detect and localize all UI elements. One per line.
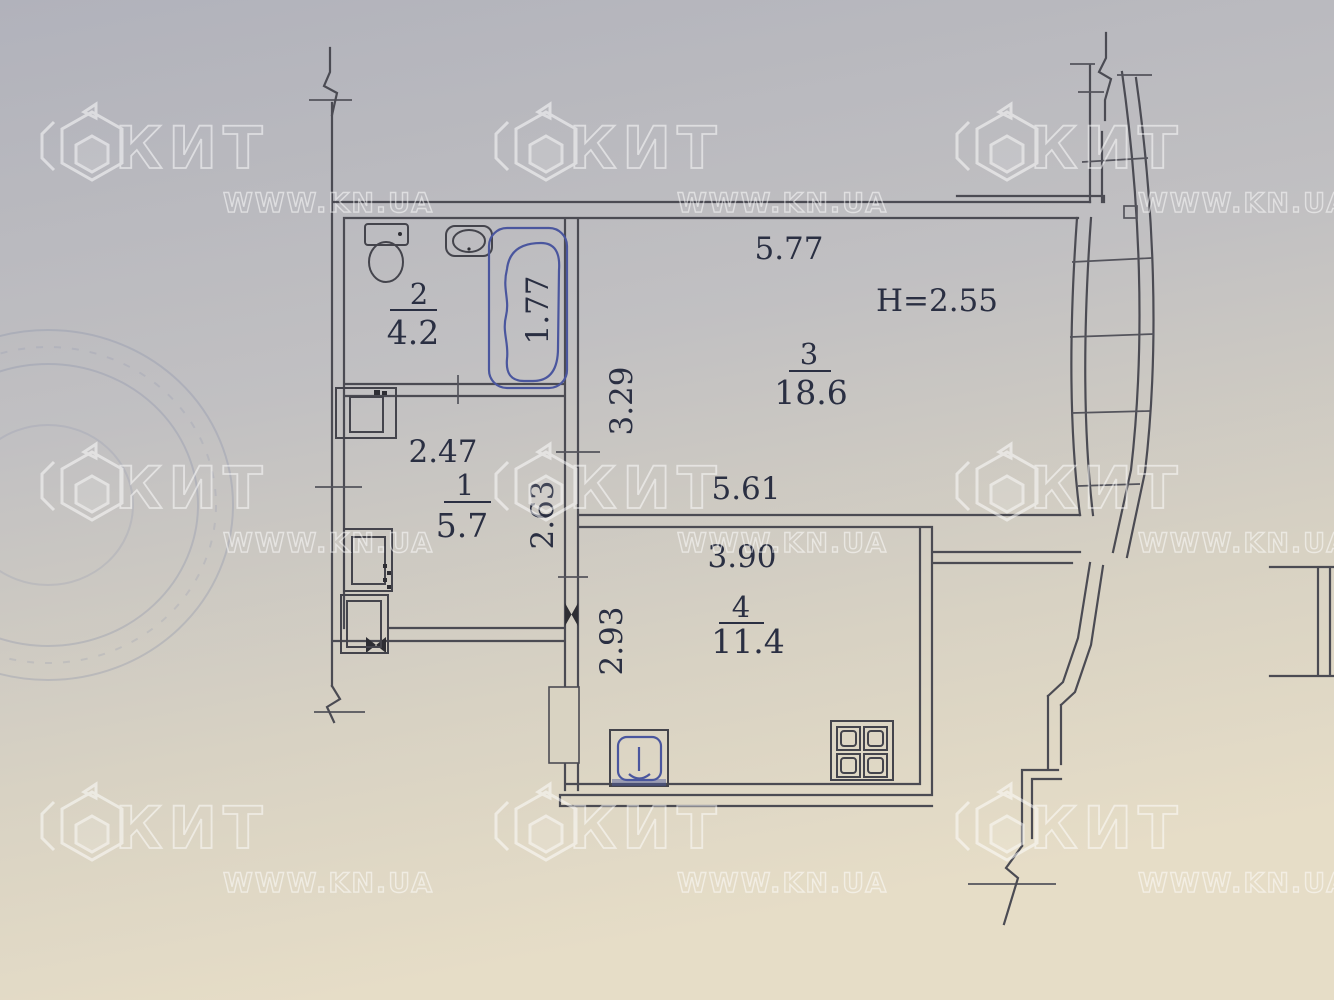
ceiling-height-label: H=2.55 bbox=[876, 283, 998, 319]
watermark-site: WWW.KN.UA bbox=[1138, 188, 1334, 219]
room-area: 5.7 bbox=[436, 506, 488, 545]
room-area: 4.2 bbox=[387, 313, 439, 352]
watermark-brand: КИТ bbox=[1030, 794, 1184, 862]
room-number: 4 bbox=[732, 590, 750, 624]
dim-kitchen-left: 2.93 bbox=[594, 606, 630, 675]
dim-living-top: 5.77 bbox=[754, 231, 823, 267]
watermark-brand: КИТ bbox=[569, 114, 723, 182]
room-number: 3 bbox=[800, 337, 818, 371]
watermark-site: WWW.KN.UA bbox=[1138, 868, 1334, 899]
dim-living-left: 3.29 bbox=[604, 366, 640, 435]
watermark-brand: КИТ bbox=[115, 794, 269, 862]
watermark-site: WWW.KN.UA bbox=[677, 528, 888, 559]
watermark-brand: КИТ bbox=[1030, 114, 1184, 182]
watermark-brand: КИТ bbox=[569, 454, 723, 522]
watermark-brand: КИТ bbox=[1030, 454, 1184, 522]
watermark-site: WWW.KN.UA bbox=[677, 868, 888, 899]
watermark-site: WWW.KN.UA bbox=[223, 868, 434, 899]
room-area: 18.6 bbox=[774, 373, 847, 412]
watermark-brand: КИТ bbox=[569, 794, 723, 862]
room-number: 2 bbox=[410, 277, 428, 311]
watermark-brand: КИТ bbox=[115, 454, 269, 522]
dim-hall-top: 2.47 bbox=[408, 434, 477, 470]
floor-plan-photo: 5.77 H=2.55 5.61 2.47 3.90 3.29 1.77 2.6… bbox=[0, 0, 1334, 1000]
watermark-site: WWW.KN.UA bbox=[223, 528, 434, 559]
watermark-brand: КИТ bbox=[115, 114, 269, 182]
watermark-site: WWW.KN.UA bbox=[1138, 528, 1334, 559]
floor-plan-drawing: 5.77 H=2.55 5.61 2.47 3.90 3.29 1.77 2.6… bbox=[0, 0, 1334, 1000]
watermark-site: WWW.KN.UA bbox=[677, 188, 888, 219]
dim-bathtub: 1.77 bbox=[520, 275, 556, 344]
kitchen-door-opening bbox=[549, 687, 579, 763]
room-number: 1 bbox=[456, 468, 474, 502]
watermark-site: WWW.KN.UA bbox=[223, 188, 434, 219]
room-area: 11.4 bbox=[711, 622, 784, 661]
